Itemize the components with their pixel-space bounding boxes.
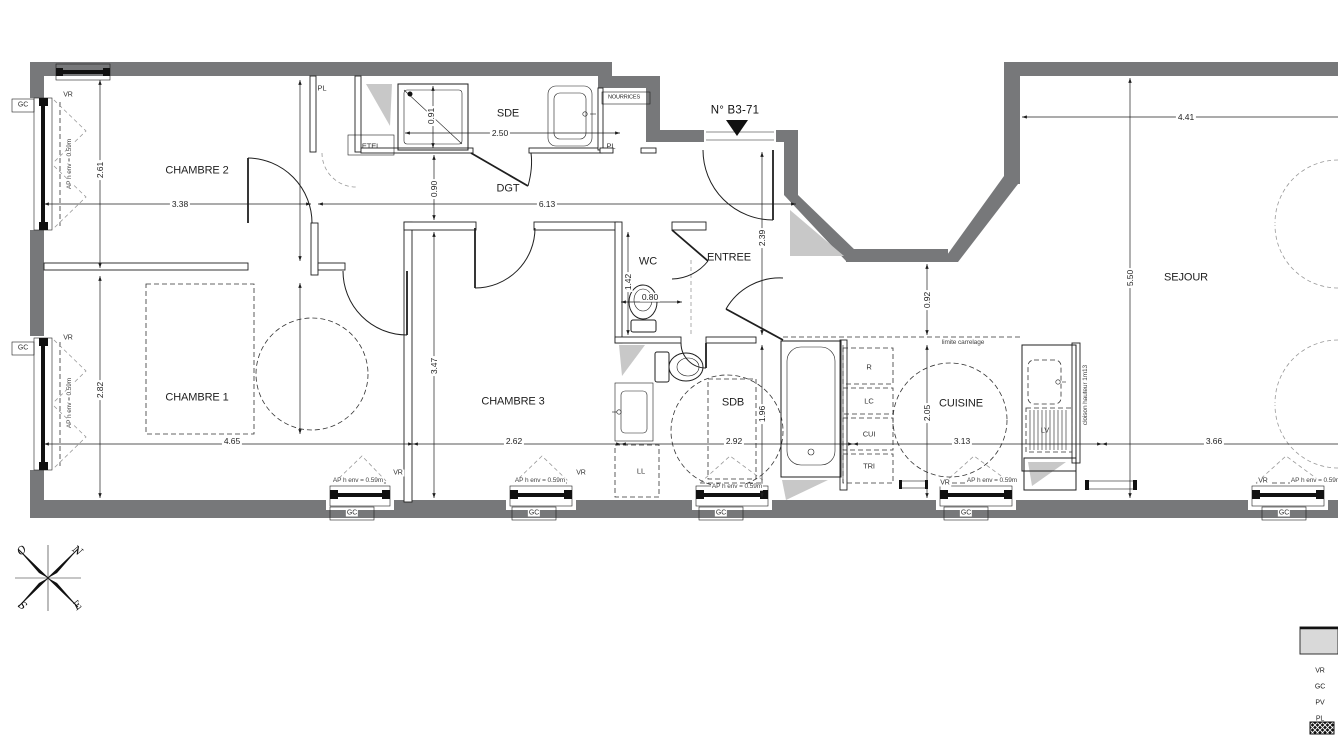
dim-dgt-l: 6.13: [537, 200, 557, 209]
dim-sejour-w: 3.66: [1204, 437, 1224, 446]
room-label-dgt: DGT: [497, 184, 520, 195]
label-pl-2: PL: [607, 142, 616, 150]
label-cloison: cloison hauteur 1m13: [1083, 364, 1090, 426]
legend-pv: PV: [1315, 700, 1324, 707]
fixtures: [398, 84, 1137, 490]
window-vr-tag: VR: [939, 480, 951, 487]
window-gc-tag: GC: [17, 345, 29, 352]
bed-outline: [146, 284, 254, 434]
label-pl: PL: [318, 84, 327, 92]
shower-drain-icon: [408, 92, 413, 97]
label-r: R: [866, 363, 871, 371]
dim-sde-w: 2.50: [490, 129, 510, 138]
room-label-sejour: SEJOUR: [1164, 273, 1208, 284]
room-label-sde: SDE: [497, 109, 519, 120]
label-lc: LC: [864, 397, 873, 405]
dim-wc-h: 1.42: [624, 272, 633, 292]
window-vr-tag: VR: [62, 92, 74, 99]
window-gc-tag: GC: [1278, 510, 1290, 517]
room-label-cuisine: CUISINE: [939, 399, 983, 410]
window-ap-tag: AP h env = 0.59m: [514, 478, 566, 485]
window-ap-tag: AP h env = 0.59m: [1290, 478, 1338, 485]
label-cui: CUI: [863, 430, 876, 438]
entry-arrow-icon: [726, 120, 748, 136]
room-label-wc: WC: [639, 257, 657, 268]
window-gc-tag: GC: [715, 510, 727, 517]
label-limite-carrelage: limite carrelage: [941, 340, 985, 347]
window-gc-tag: GC: [17, 102, 29, 109]
turning-circle: [256, 318, 368, 430]
unit-number: N° B3-71: [711, 105, 759, 117]
window-ap-tag: AP h env = 0.59m: [67, 377, 74, 429]
dim-wc-w: 0.80: [640, 293, 660, 302]
room-label-chambre1: CHAMBRE 1: [165, 393, 228, 404]
floor-plan: N° B3-71 CHAMBRE 2 SDE DGT WC ENTREE CHA…: [0, 0, 1338, 737]
window-vr-tag: VR: [1257, 478, 1269, 485]
dim-cuisine-h: 2.05: [923, 403, 932, 423]
label-lv: LV: [1041, 426, 1049, 434]
dim-chambre2-w: 3.38: [170, 200, 190, 209]
label-ll: LL: [637, 467, 645, 475]
turning-circle: [893, 363, 1007, 477]
dim-chambre3-w: 2.62: [504, 437, 524, 446]
dim-chambre2-h: 2.61: [96, 160, 105, 180]
window-ap-tag: AP h env = 0.59m: [67, 138, 74, 190]
floor-plan-drawing: [0, 0, 1338, 737]
legend-gc: GC: [1315, 684, 1325, 691]
dim-sejour-top: 4.41: [1176, 113, 1196, 122]
window-ap-tag: AP h env = 0.59m: [966, 478, 1018, 485]
room-label-entree: ENTREE: [707, 253, 751, 264]
window-vr-tag: VR: [62, 335, 74, 342]
window-gc-tag: GC: [960, 510, 972, 517]
sdb-toilet: [655, 352, 703, 382]
label-tri: TRI: [863, 462, 875, 470]
room-label-sdb: SDB: [722, 398, 744, 409]
bathtub: [781, 341, 841, 477]
window-ap-tag: AP h env = 0.59m: [332, 478, 384, 485]
dim-dgt-w: 0.90: [430, 179, 439, 199]
label-etel: ETEL: [362, 142, 380, 150]
label-nourrices: NOURRICES: [608, 95, 640, 101]
window-gc-tag: GC: [528, 510, 540, 517]
turning-circle: [671, 375, 783, 487]
window-vr-tag: VR: [392, 470, 404, 477]
dim-chambre1-w: 4.65: [222, 437, 242, 446]
dim-shower: 0.91: [427, 106, 436, 126]
dim-chambre3-h: 3.47: [430, 356, 439, 376]
window-ap-tag: AP h env = 0.59m: [711, 484, 763, 491]
dim-chambre1-h: 2.82: [96, 380, 105, 400]
legend-pl: PL: [1316, 716, 1324, 723]
exterior-walls: [30, 62, 1338, 518]
dim-sejour-h: 5.50: [1126, 268, 1135, 288]
dim-cuisine-w: 3.13: [952, 437, 972, 446]
legend-vr: VR: [1315, 668, 1325, 675]
dim-sdb-w: 2.92: [724, 437, 744, 446]
window-gc-tag: GC: [346, 510, 358, 517]
room-label-chambre2: CHAMBRE 2: [165, 166, 228, 177]
dim-recess: 0.92: [923, 290, 932, 310]
room-label-chambre3: CHAMBRE 3: [481, 397, 544, 408]
dim-sdb-h: 1.96: [758, 404, 767, 424]
dim-entree-h: 2.39: [758, 228, 767, 248]
dashed-marks: [146, 153, 1020, 497]
window-vr-tag: VR: [575, 470, 587, 477]
